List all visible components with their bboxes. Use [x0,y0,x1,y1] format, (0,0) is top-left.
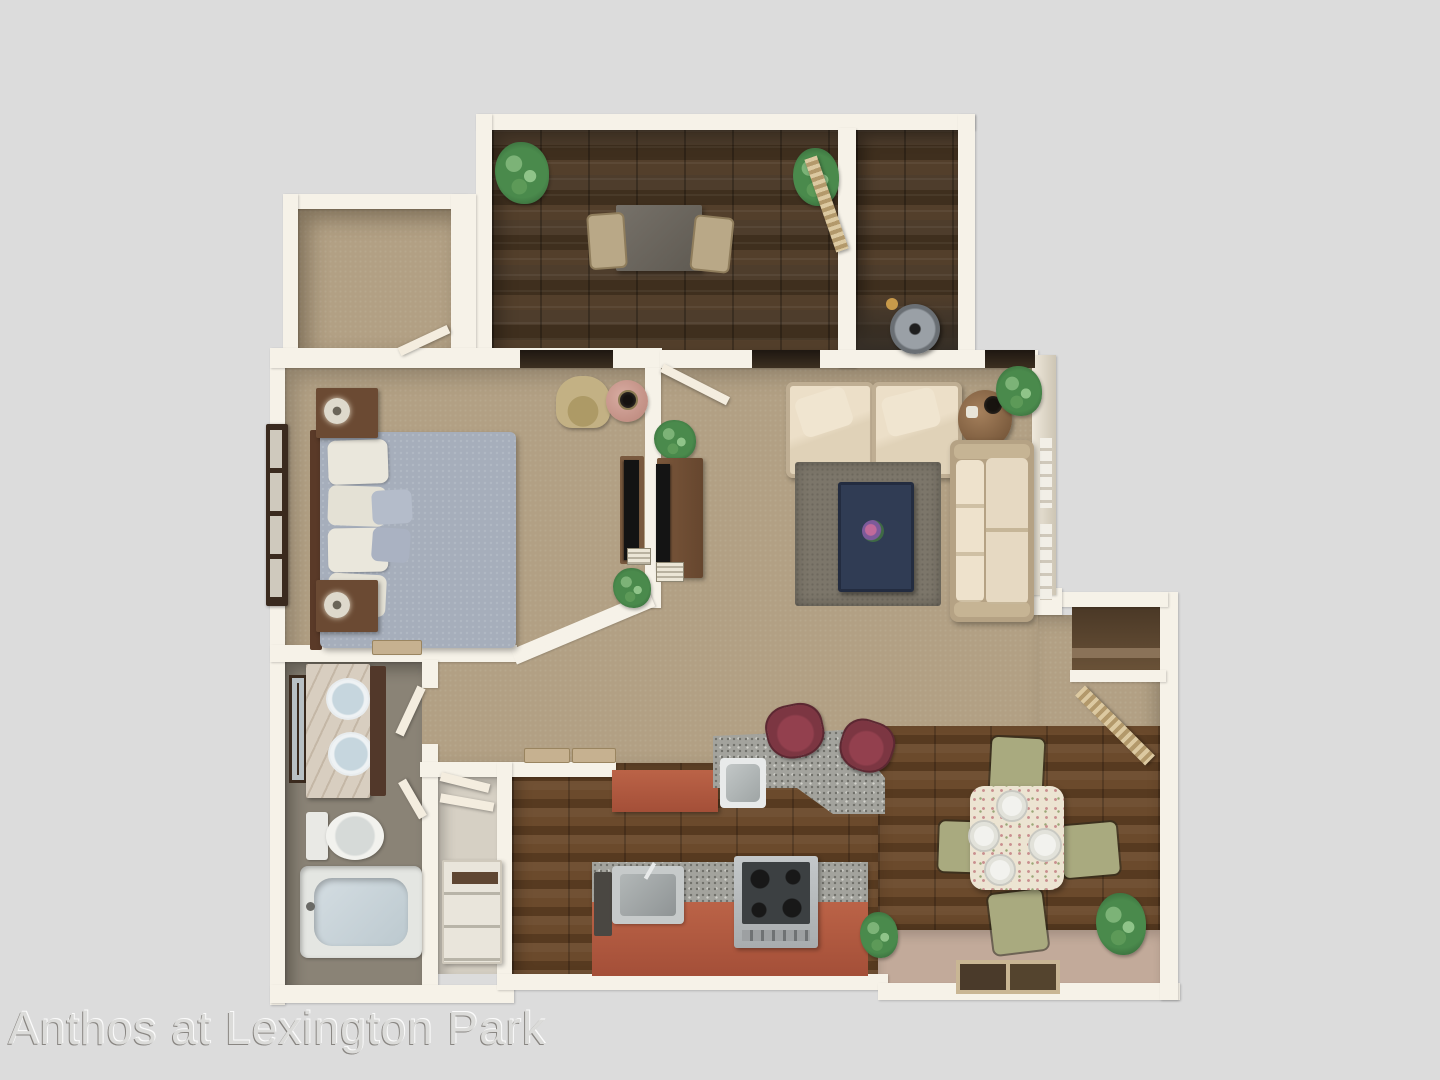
window-opening [752,350,820,368]
wall [476,114,492,360]
bathroom-mirror [289,675,307,783]
den-chair [586,212,628,271]
potted-plant [860,912,898,958]
wall [270,985,514,1003]
potted-plant [495,142,549,204]
kitchen-upper-cabinets [612,770,718,812]
bar-sink-basin [726,764,760,802]
kitchen-sink-basin [620,874,676,916]
bathroom-sink [326,678,370,720]
magazine [656,562,684,582]
wall [422,744,438,990]
floor-mat [372,640,422,655]
living-window [1040,524,1052,600]
sofa-armrest [954,602,1030,617]
bathroom-sink [328,732,374,776]
wall [476,114,975,130]
table-lamp [324,398,350,424]
potted-plant [1096,893,1146,955]
table-lamp [324,592,350,618]
wall [1160,592,1178,1000]
toilet-bowl [326,812,384,860]
bed-accent-pillow [371,527,411,564]
wall [283,194,298,362]
potted-plant [996,366,1042,416]
living-tv [656,464,670,570]
potted-plant [654,420,696,460]
sofa-seat-cushions [986,458,1028,604]
side-table-decor [966,406,978,418]
stove-controls [742,930,810,941]
floor-mat [572,748,616,763]
entry-closet-floor [1072,607,1160,672]
wall [1056,592,1168,607]
watermark-text: Anthos at Lexington Park [8,1002,546,1055]
entry-closet-shelf [1072,648,1160,658]
den-chair [689,214,735,274]
wall [497,974,888,990]
walk-in-closet-floor [298,209,451,348]
floor-mat [524,748,570,763]
floor-plan: Anthos at Lexington Park [0,0,1440,1080]
bathtub-basin [314,878,408,946]
wall [451,194,476,362]
toilet-tank [306,812,328,860]
wall [660,350,1038,368]
wall [958,114,975,362]
magazine [627,548,651,565]
dishwasher [594,872,612,936]
plate [1028,828,1062,862]
plate [984,854,1016,886]
picture-frame [1006,960,1060,994]
coffee-table-flowers [862,520,884,542]
wall [283,194,467,209]
window-opening [985,350,1035,368]
dining-chair [1060,822,1120,879]
living-window [1040,438,1052,508]
dining-chair [988,889,1049,955]
potted-plant [613,568,651,608]
bedroom-window-panes [270,430,282,598]
bathtub-faucet [306,902,315,911]
bedroom-table-lamp [618,390,638,410]
wall [1070,670,1166,682]
water-heater-valve [886,298,898,310]
bed-pillow [327,439,388,485]
wall [422,660,438,688]
bedroom-armchair [556,376,610,428]
vanity-cabinet [370,666,386,796]
stove-cooktop [742,862,810,924]
sofa-back-cushions [956,460,984,602]
picture-frame [956,960,1010,994]
sliding-door-opening [520,350,613,368]
bed-accent-pillow [371,489,413,525]
plate [968,820,1000,852]
bedroom-tv [624,460,639,560]
water-heater [890,304,940,354]
plate [996,790,1028,822]
sofa-armrest [954,444,1030,459]
dresser-top [452,872,498,884]
